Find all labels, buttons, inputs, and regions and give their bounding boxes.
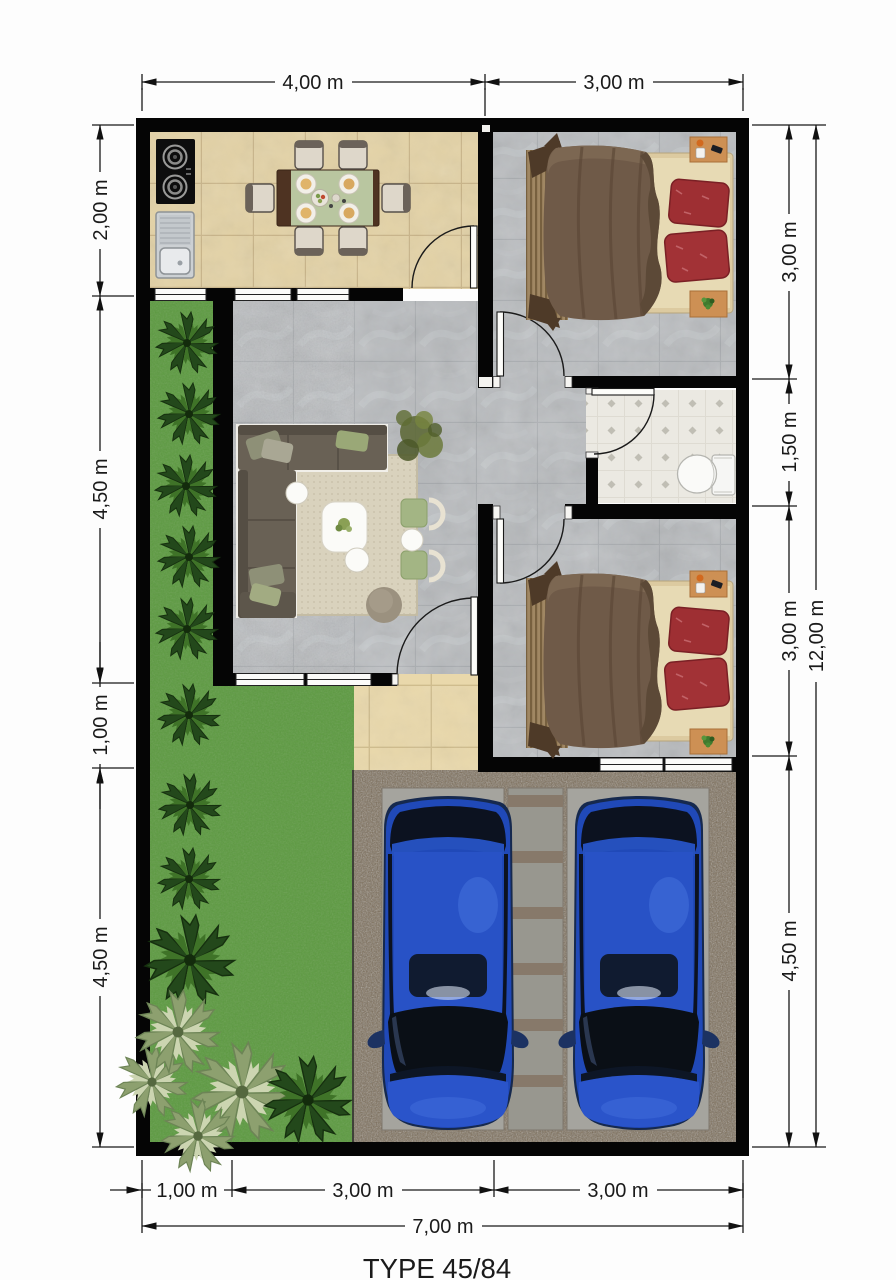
svg-text:TYPE 45/84: TYPE 45/84	[363, 1253, 511, 1280]
svg-text:3,00 m: 3,00 m	[587, 1180, 648, 1202]
svg-text:4,50 m: 4,50 m	[90, 926, 112, 987]
svg-text:4,50 m: 4,50 m	[90, 458, 112, 519]
svg-text:1,00 m: 1,00 m	[156, 1180, 217, 1202]
svg-text:3,00 m: 3,00 m	[779, 600, 801, 661]
svg-text:3,00 m: 3,00 m	[779, 221, 801, 282]
svg-text:3,00 m: 3,00 m	[583, 72, 644, 94]
svg-text:7,00 m: 7,00 m	[412, 1216, 473, 1238]
svg-text:2,00 m: 2,00 m	[90, 179, 112, 240]
svg-text:4,50 m: 4,50 m	[779, 920, 801, 981]
svg-text:3,00 m: 3,00 m	[332, 1180, 393, 1202]
svg-text:1,00 m: 1,00 m	[90, 694, 112, 755]
svg-text:12,00 m: 12,00 m	[806, 600, 828, 672]
svg-text:1,50 m: 1,50 m	[779, 411, 801, 472]
svg-text:4,00 m: 4,00 m	[282, 72, 343, 94]
